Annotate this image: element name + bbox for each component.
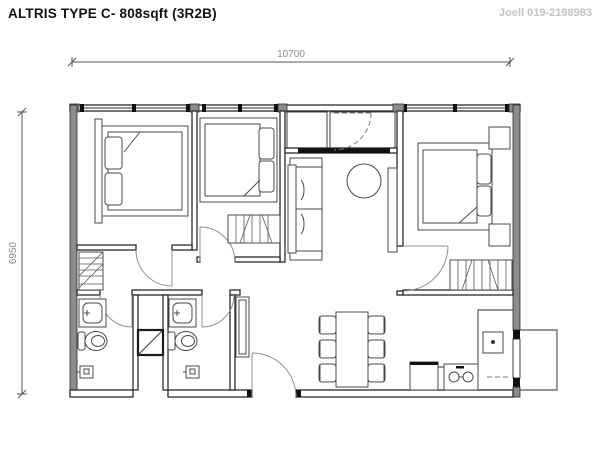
bedroom2-bed [200, 118, 277, 202]
wall-br1-bottom-right [172, 245, 192, 250]
wall-corridor-shaft [132, 290, 202, 295]
bed3-pillow-2 [477, 186, 491, 216]
bedroom3-wardrobe [450, 260, 512, 290]
wall-corridor-bath1 [77, 290, 100, 295]
wall-corridor-foyer [230, 290, 240, 295]
entrance-door [252, 353, 296, 397]
shower-2 [183, 366, 199, 378]
nightstand-top [489, 127, 510, 149]
bedroom3-door [403, 246, 448, 291]
tv-console [388, 168, 397, 252]
entrance-jamb-left [247, 390, 252, 397]
basin-1 [79, 299, 106, 327]
bed1-headboard [95, 119, 102, 223]
bedroom1-bed [95, 119, 188, 223]
coffee-table [347, 164, 381, 198]
corridor-closet [79, 252, 103, 290]
ac-ledge-compartment [287, 112, 327, 148]
dimension-height: 6950 [8, 108, 27, 398]
wall-living-br3 [397, 111, 403, 246]
wall-br3-kitchen [403, 290, 513, 295]
wall-br1-bottom-left [77, 245, 136, 250]
entrance-jamb-right [296, 390, 301, 397]
ac-ledge-door [334, 113, 371, 150]
bed3-pillow-1 [477, 154, 491, 184]
basin-2 [169, 299, 196, 327]
bed1-pillow-2 [105, 173, 122, 205]
wall-br1-br2 [192, 111, 197, 250]
wall-br2-bottom-right [235, 257, 280, 262]
bedroom3-bed [418, 127, 510, 246]
dining-table [336, 312, 368, 387]
dining-set [319, 312, 385, 387]
bed3-mattress [423, 150, 477, 223]
bathroom2 [168, 299, 199, 378]
bed2-pillow-2 [259, 161, 274, 192]
wall-br3-jamb [397, 291, 403, 295]
appliance [410, 362, 438, 390]
bed2-pillow-1 [259, 128, 274, 159]
bottom-wall [70, 390, 513, 397]
dimension-width: 10700 [68, 49, 514, 67]
sofa [288, 158, 322, 260]
stove [444, 364, 478, 390]
toilet-2 [168, 332, 197, 351]
bedroom1-door [136, 250, 172, 286]
bed1-pillow-1 [105, 137, 122, 169]
bedroom2-wardrobe [228, 215, 280, 243]
bed2-mattress [205, 124, 260, 196]
yard [520, 330, 557, 390]
floor-plan-page: ALTRIS TYPE C- 808sqft (3R2B) Joell 019-… [0, 0, 600, 459]
shower-1 [77, 366, 93, 378]
left-wall [70, 105, 77, 397]
ac-ledge-access [330, 112, 395, 148]
shaft [138, 330, 163, 355]
kitchen-sink [483, 332, 503, 353]
floor-plan-drawing: 10700 6950 [0, 0, 600, 459]
bathroom1 [77, 299, 107, 378]
ac-ledge [287, 112, 395, 150]
living-sill-bar [298, 148, 390, 153]
bathroom2-door [202, 295, 234, 327]
sofa-back [288, 165, 296, 253]
kitchen [410, 310, 513, 390]
wall-br2-living [280, 111, 285, 262]
dimension-height-label: 6950 [8, 241, 19, 264]
entrance-cabinet [236, 297, 249, 357]
right-wall [513, 105, 520, 397]
nightstand-bottom [489, 224, 510, 246]
dimension-width-label: 10700 [277, 49, 305, 60]
toilet-1 [78, 332, 107, 351]
